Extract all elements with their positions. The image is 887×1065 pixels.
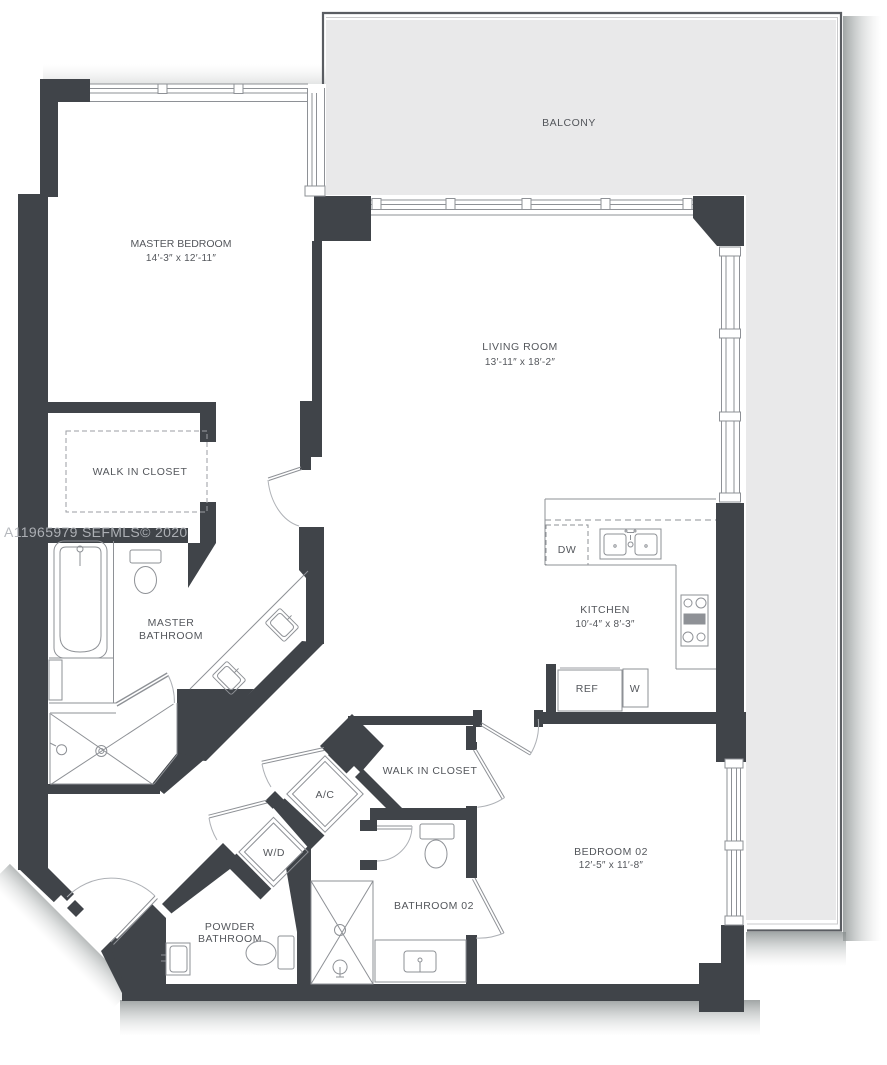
svg-text:BATHROOM 02: BATHROOM 02: [394, 900, 474, 912]
svg-text:10′-4″ x 8′-3″: 10′-4″ x 8′-3″: [575, 619, 635, 630]
svg-text:13′-11″ x 18′-2″: 13′-11″ x 18′-2″: [485, 357, 555, 368]
svg-text:A11965979 SEFMLS© 2020: A11965979 SEFMLS© 2020: [4, 524, 188, 540]
svg-text:POWDER: POWDER: [205, 921, 255, 933]
svg-text:W: W: [630, 683, 640, 695]
svg-text:A/C: A/C: [315, 789, 334, 801]
svg-text:MASTER: MASTER: [148, 617, 195, 629]
svg-text:WALK IN CLOSET: WALK IN CLOSET: [383, 765, 478, 777]
svg-text:BALCONY: BALCONY: [542, 117, 596, 129]
svg-text:BEDROOM 02: BEDROOM 02: [574, 846, 648, 858]
svg-text:REF: REF: [576, 683, 599, 695]
svg-text:LIVING ROOM: LIVING ROOM: [482, 341, 558, 353]
svg-text:W/D: W/D: [263, 847, 285, 859]
svg-text:14′-3″ x 12′-11″: 14′-3″ x 12′-11″: [146, 253, 216, 264]
svg-text:12′-5″ x 11′-8″: 12′-5″ x 11′-8″: [579, 860, 644, 871]
svg-text:BATHROOM: BATHROOM: [139, 630, 203, 642]
svg-text:WALK IN CLOSET: WALK IN CLOSET: [93, 466, 188, 478]
svg-text:KITCHEN: KITCHEN: [580, 604, 630, 616]
svg-text:MASTER BEDROOM: MASTER BEDROOM: [131, 238, 232, 250]
svg-text:DW: DW: [558, 544, 577, 556]
